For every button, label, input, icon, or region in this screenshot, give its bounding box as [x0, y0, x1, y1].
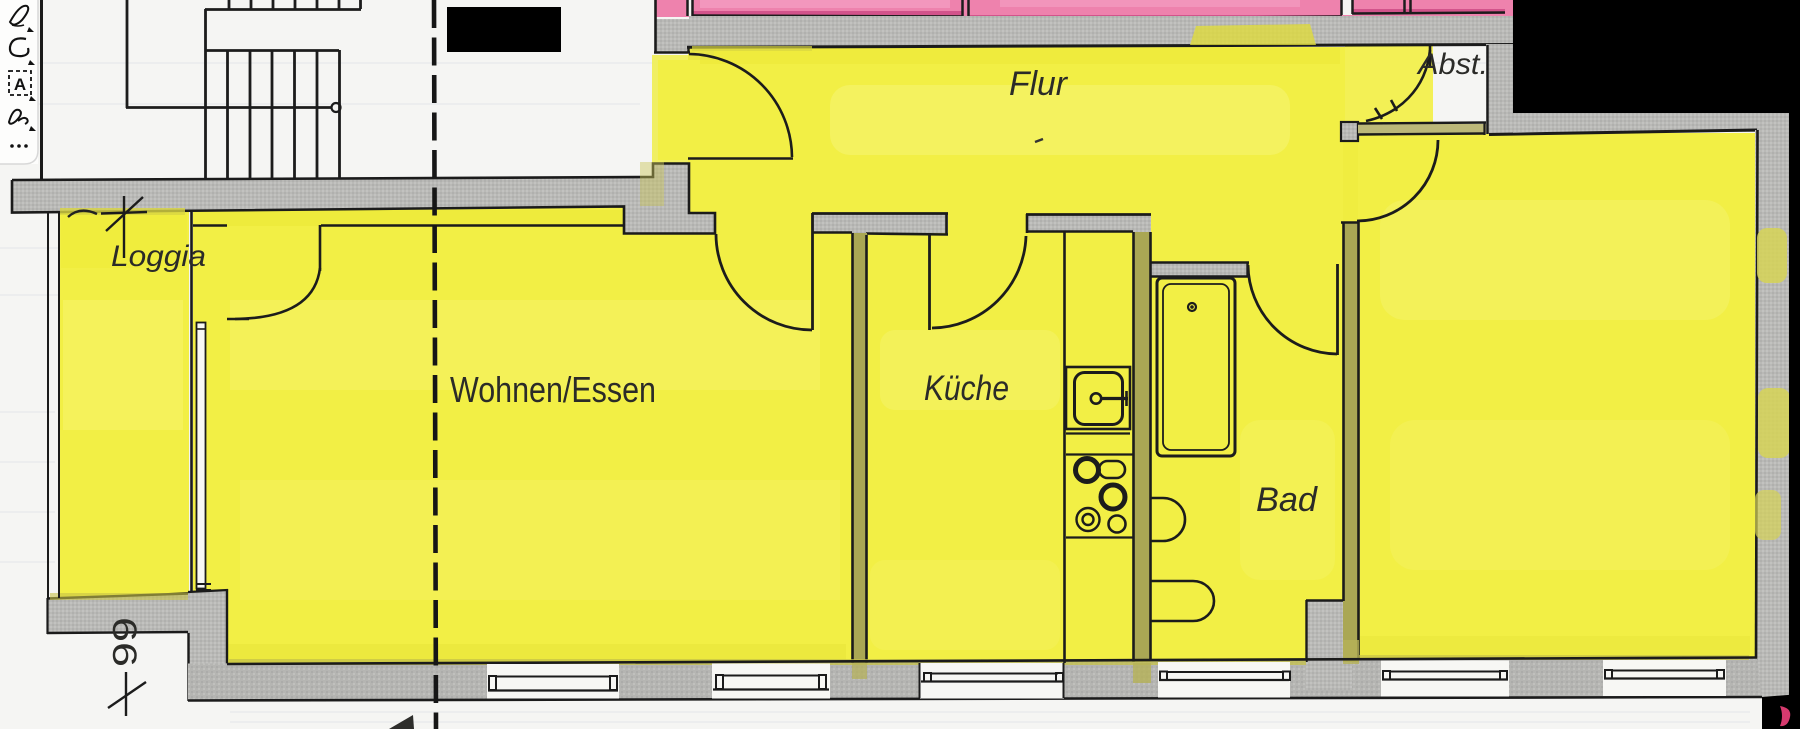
svg-text:Abst.: Abst.	[1416, 48, 1488, 81]
svg-text:Wohnen/Essen: Wohnen/Essen	[450, 369, 656, 410]
svg-text:Flur: Flur	[1009, 65, 1069, 103]
svg-text:A: A	[14, 75, 26, 94]
svg-text:66: 66	[105, 617, 143, 667]
svg-text:Bad: Bad	[1256, 481, 1318, 519]
svg-text:Küche: Küche	[924, 369, 1009, 408]
svg-text:Loggia: Loggia	[111, 240, 206, 273]
